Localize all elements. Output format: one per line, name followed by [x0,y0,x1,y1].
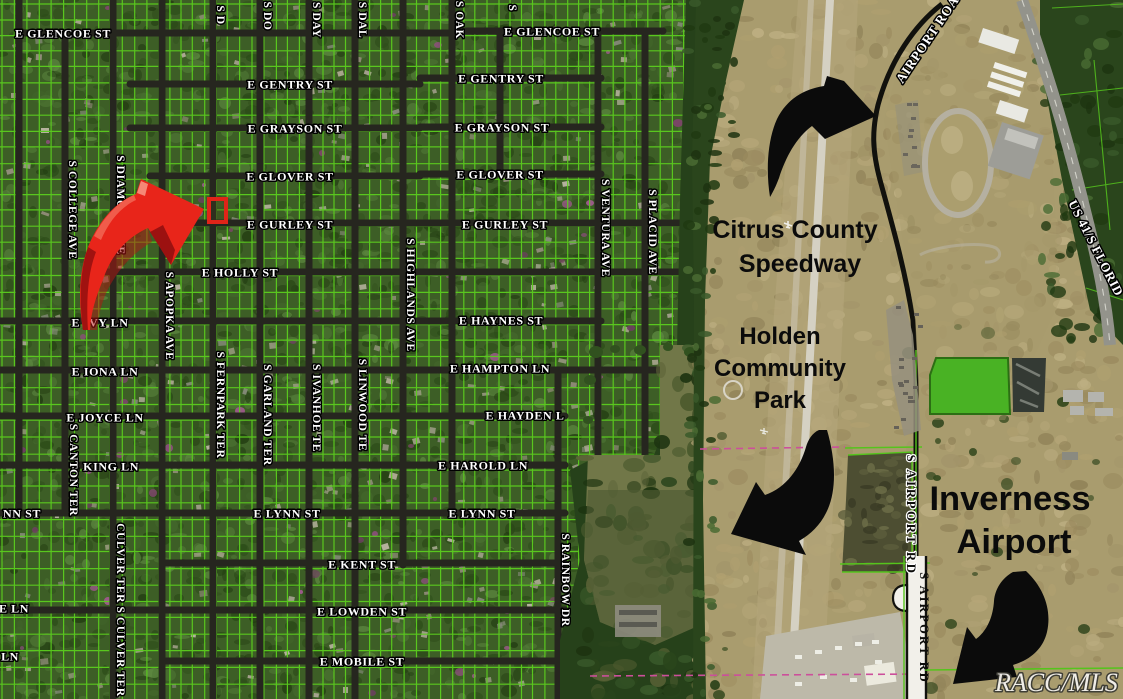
svg-text:Inverness: Inverness [929,480,1090,518]
svg-text:E GRAYSON ST: E GRAYSON ST [455,120,550,134]
svg-text:Park: Park [754,387,807,414]
svg-text:E IVY LN: E IVY LN [71,315,128,329]
svg-text:E HOLLY ST: E HOLLY ST [202,265,278,279]
svg-text:E GLOVER ST: E GLOVER ST [456,167,543,181]
svg-text:NN ST: NN ST [3,506,41,520]
svg-text:S HIGHLANDS AVE: S HIGHLANDS AVE [404,238,416,352]
svg-text:S: S [506,5,518,12]
svg-text:E HAROLD LN: E HAROLD LN [438,458,528,472]
svg-text:CULVER TER S CULVER TER: CULVER TER S CULVER TER [114,523,126,697]
svg-text:E LN: E LN [0,601,29,615]
svg-text:S OAK: S OAK [453,1,465,39]
svg-text:S COLLEGE AVE: S COLLEGE AVE [66,161,78,260]
svg-text:E GLOVER ST: E GLOVER ST [246,169,333,183]
svg-text:E HAYNES ST: E HAYNES ST [459,313,543,327]
svg-text:E JOYCE LN: E JOYCE LN [66,410,143,424]
svg-text:S DO: S DO [261,2,273,31]
svg-text:E KING LN: E KING LN [71,459,139,473]
svg-text:E GURLEY ST: E GURLEY ST [247,217,333,231]
svg-text:S D: S D [214,5,226,24]
svg-text:E MOBILE ST: E MOBILE ST [320,654,405,668]
svg-text:E LYNN ST: E LYNN ST [254,506,321,520]
svg-text:E LYNN ST: E LYNN ST [449,506,516,520]
svg-text:S CANTON TER: S CANTON TER [67,424,79,517]
svg-text:Citrus County: Citrus County [712,216,877,244]
svg-text:E GLENCOE ST: E GLENCOE ST [504,24,600,38]
svg-text:E LOWDEN ST: E LOWDEN ST [317,604,407,618]
svg-text:S IVANHOE TE: S IVANHOE TE [310,364,322,452]
svg-text:Airport: Airport [957,523,1073,561]
svg-text:E GRAYSON ST: E GRAYSON ST [248,121,343,135]
svg-text:E GLENCOE ST: E GLENCOE ST [15,26,111,40]
svg-text:E HAYDEN L: E HAYDEN L [486,408,565,422]
svg-text:E IONA LN: E IONA LN [72,364,139,378]
svg-text:LN: LN [1,649,19,663]
svg-text:S FERNPARK TER: S FERNPARK TER [214,351,226,458]
svg-text:E HAMPTON LN: E HAMPTON LN [450,361,550,375]
svg-text:E KENT ST: E KENT ST [328,557,396,571]
svg-text:E GENTRY ST: E GENTRY ST [247,77,333,91]
svg-text:E GURLEY ST: E GURLEY ST [462,217,548,231]
svg-text:RACC/MLS ©: RACC/MLS © [994,668,1123,697]
svg-text:S AIRPORT RD: S AIRPORT RD [917,572,931,684]
svg-text:Community: Community [714,355,847,382]
svg-text:S DAY: S DAY [310,2,322,38]
svg-text:S DAL: S DAL [356,2,368,39]
svg-text:S AIRPORT RD: S AIRPORT RD [904,454,919,575]
svg-text:S LINWOOD TE: S LINWOOD TE [356,359,368,452]
svg-text:Holden: Holden [739,323,820,350]
svg-text:E GENTRY ST: E GENTRY ST [458,71,544,85]
svg-text:Speedway: Speedway [739,250,861,278]
svg-text:S RAINBOW DR: S RAINBOW DR [559,533,571,626]
svg-text:S VENTURA AVE: S VENTURA AVE [599,179,611,277]
svg-text:S GARLAND TER: S GARLAND TER [261,364,273,466]
svg-text:S APOPKA AVE: S APOPKA AVE [163,272,175,361]
svg-text:S PLACID AVE: S PLACID AVE [646,189,658,275]
